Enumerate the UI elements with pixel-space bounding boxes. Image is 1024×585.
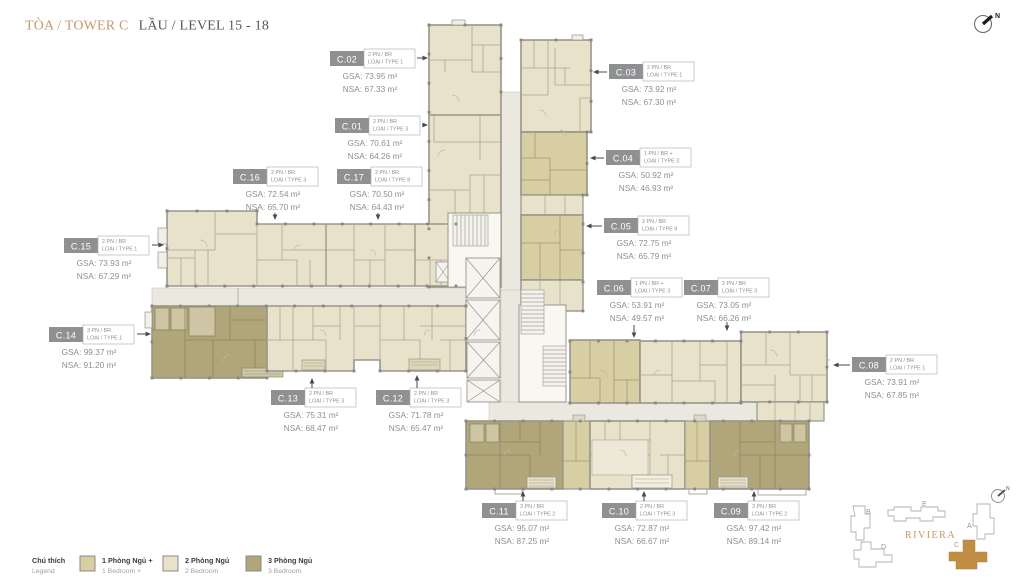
svg-text:C.11: C.11 — [489, 507, 509, 517]
svg-text:2 PN / BR: 2 PN / BR — [271, 170, 295, 176]
svg-text:LOẠI / TYPE 3: LOẠI / TYPE 3 — [373, 127, 408, 133]
svg-text:GSA: 72.87 m²: GSA: 72.87 m² — [615, 523, 670, 533]
svg-text:LOẠI / TYPE 9: LOẠI / TYPE 9 — [642, 227, 677, 233]
svg-text:E: E — [922, 501, 927, 508]
svg-text:GSA: 70.50 m²: GSA: 70.50 m² — [350, 189, 405, 199]
svg-text:NSA: 65.79 m²: NSA: 65.79 m² — [617, 251, 672, 261]
svg-text:LOẠI / TYPE 3: LOẠI / TYPE 3 — [414, 399, 449, 405]
svg-text:LOẠI / TYPE 1: LOẠI / TYPE 1 — [890, 366, 925, 372]
svg-text:C.07: C.07 — [691, 284, 711, 294]
svg-text:LOẠI / TYPE 1: LOẠI / TYPE 1 — [368, 60, 403, 66]
svg-text:C.12: C.12 — [383, 394, 403, 404]
svg-text:LOẠI / TYPE 1: LOẠI / TYPE 1 — [102, 247, 137, 253]
svg-text:3 PN / BR: 3 PN / BR — [520, 504, 544, 510]
svg-text:GSA: 71.78 m²: GSA: 71.78 m² — [389, 410, 444, 420]
svg-text:NSA: 65.70 m²: NSA: 65.70 m² — [246, 202, 301, 212]
svg-text:2 PN / BR: 2 PN / BR — [890, 358, 914, 364]
svg-text:LOẠI / TYPE 3: LOẠI / TYPE 3 — [640, 512, 675, 518]
svg-text:NSA: 67.33 m²: NSA: 67.33 m² — [343, 84, 398, 94]
svg-text:NSA: 89.14 m²: NSA: 89.14 m² — [727, 536, 782, 546]
svg-text:NSA: 64.43 m²: NSA: 64.43 m² — [350, 202, 405, 212]
svg-text:NSA: 46.93 m²: NSA: 46.93 m² — [619, 183, 674, 193]
svg-text:NSA: 65.47 m²: NSA: 65.47 m² — [389, 423, 444, 433]
svg-text:1 PN / BR +: 1 PN / BR + — [635, 281, 664, 287]
svg-text:C.05: C.05 — [611, 222, 631, 232]
svg-text:GSA: 75.31 m²: GSA: 75.31 m² — [284, 410, 339, 420]
svg-text:C.09: C.09 — [721, 507, 741, 517]
svg-text:2 PN / BR: 2 PN / BR — [309, 391, 333, 397]
svg-text:A: A — [967, 523, 972, 530]
svg-text:C.01: C.01 — [342, 122, 362, 132]
svg-text:3 Bedroom: 3 Bedroom — [268, 568, 302, 575]
svg-text:2 PN / BR: 2 PN / BR — [642, 219, 666, 225]
svg-text:GSA: 50.92 m²: GSA: 50.92 m² — [619, 170, 674, 180]
svg-text:GSA: 73.91 m²: GSA: 73.91 m² — [865, 377, 920, 387]
svg-text:NSA: 66.67 m²: NSA: 66.67 m² — [615, 536, 670, 546]
svg-text:NSA: 67.85 m²: NSA: 67.85 m² — [865, 390, 920, 400]
svg-text:C.06: C.06 — [604, 284, 624, 294]
svg-text:C.02: C.02 — [337, 55, 357, 65]
svg-text:C.10: C.10 — [609, 507, 629, 517]
svg-text:LOẠI / TYPE 2: LOẠI / TYPE 2 — [520, 512, 555, 518]
svg-text:GSA: 73.05 m²: GSA: 73.05 m² — [697, 300, 752, 310]
svg-text:GSA: 99.37 m²: GSA: 99.37 m² — [62, 347, 117, 357]
svg-text:GSA: 73.95 m²: GSA: 73.95 m² — [343, 71, 398, 81]
svg-text:NSA: 49.57 m²: NSA: 49.57 m² — [610, 313, 665, 323]
svg-text:N: N — [995, 13, 1000, 20]
svg-text:NSA: 67.30 m²: NSA: 67.30 m² — [622, 97, 677, 107]
svg-text:GSA: 97.42 m²: GSA: 97.42 m² — [727, 523, 782, 533]
svg-text:GSA: 70.61 m²: GSA: 70.61 m² — [348, 138, 403, 148]
svg-text:LOẠI / TYPE 3: LOẠI / TYPE 3 — [644, 159, 679, 165]
svg-text:1 PN / BR +: 1 PN / BR + — [644, 151, 673, 157]
svg-text:C.14: C.14 — [56, 331, 76, 341]
svg-text:1 Phòng Ngủ +: 1 Phòng Ngủ + — [102, 556, 153, 565]
svg-text:GSA: 72.54 m²: GSA: 72.54 m² — [246, 189, 301, 199]
svg-text:NSA: 68.47 m²: NSA: 68.47 m² — [284, 423, 339, 433]
svg-text:C.08: C.08 — [859, 361, 879, 371]
svg-text:TÒA / TOWER CLẦU / LEVEL 15 -: TÒA / TOWER CLẦU / LEVEL 15 - 18 — [25, 17, 269, 34]
svg-text:LOẠI / TYPE 3: LOẠI / TYPE 3 — [309, 399, 344, 405]
svg-text:C.03: C.03 — [616, 68, 636, 78]
svg-text:2 PN / BR: 2 PN / BR — [640, 504, 664, 510]
svg-text:3 PN / BR: 3 PN / BR — [752, 504, 776, 510]
svg-text:LOẠI / TYPE 8: LOẠI / TYPE 8 — [375, 178, 410, 184]
svg-text:NSA: 66.26 m²: NSA: 66.26 m² — [697, 313, 752, 323]
svg-text:LOẠI / TYPE 2: LOẠI / TYPE 2 — [752, 512, 787, 518]
svg-text:NSA: 87.25 m²: NSA: 87.25 m² — [495, 536, 550, 546]
svg-text:2 PN / BR: 2 PN / BR — [375, 170, 399, 176]
svg-text:2 PN / BR: 2 PN / BR — [722, 281, 746, 287]
svg-text:3 PN / BR: 3 PN / BR — [87, 328, 111, 334]
svg-text:N: N — [1006, 486, 1010, 492]
svg-text:GSA: 53.91 m²: GSA: 53.91 m² — [610, 300, 665, 310]
svg-text:C.13: C.13 — [278, 394, 298, 404]
svg-text:2 PN / BR: 2 PN / BR — [102, 239, 126, 245]
svg-text:GSA: 73.93 m²: GSA: 73.93 m² — [77, 258, 132, 268]
svg-text:RIVIERA: RIVIERA — [905, 530, 956, 541]
svg-text:2 PN / BR: 2 PN / BR — [368, 52, 392, 58]
svg-text:B: B — [866, 509, 871, 516]
svg-text:C.15: C.15 — [71, 242, 91, 252]
svg-text:NSA: 67.29 m²: NSA: 67.29 m² — [77, 271, 132, 281]
svg-text:3 Phòng Ngủ: 3 Phòng Ngủ — [268, 556, 312, 565]
svg-text:C.04: C.04 — [613, 154, 633, 164]
svg-text:2 PN / BR: 2 PN / BR — [373, 119, 397, 125]
svg-text:NSA: 91.20 m²: NSA: 91.20 m² — [62, 360, 117, 370]
svg-text:2 Bedroom: 2 Bedroom — [185, 568, 219, 575]
svg-text:Chú thích: Chú thích — [32, 556, 65, 565]
svg-text:LOẠI / TYPE 3: LOẠI / TYPE 3 — [635, 289, 670, 295]
svg-text:2 Phòng Ngủ: 2 Phòng Ngủ — [185, 556, 229, 565]
svg-text:GSA: 95.07 m²: GSA: 95.07 m² — [495, 523, 550, 533]
svg-text:1 Bedroom +: 1 Bedroom + — [102, 568, 141, 575]
svg-text:C: C — [954, 542, 959, 549]
svg-text:C.17: C.17 — [344, 173, 364, 183]
svg-text:LOẠI / TYPE 1: LOẠI / TYPE 1 — [87, 336, 122, 342]
svg-text:GSA: 72.75 m²: GSA: 72.75 m² — [617, 238, 672, 248]
svg-text:LOẠI / TYPE 1: LOẠI / TYPE 1 — [647, 73, 682, 79]
svg-text:2 PN / BR: 2 PN / BR — [647, 65, 671, 71]
svg-text:LOẠI / TYPE 3: LOẠI / TYPE 3 — [722, 289, 757, 295]
svg-text:2 PN / BR: 2 PN / BR — [414, 391, 438, 397]
svg-text:C.16: C.16 — [240, 173, 260, 183]
svg-text:Legend: Legend — [32, 568, 55, 575]
svg-text:GSA: 73.92 m²: GSA: 73.92 m² — [622, 84, 677, 94]
svg-text:LOẠI / TYPE 3: LOẠI / TYPE 3 — [271, 178, 306, 184]
svg-text:D: D — [881, 544, 886, 551]
svg-text:NSA: 64.26 m²: NSA: 64.26 m² — [348, 151, 403, 161]
